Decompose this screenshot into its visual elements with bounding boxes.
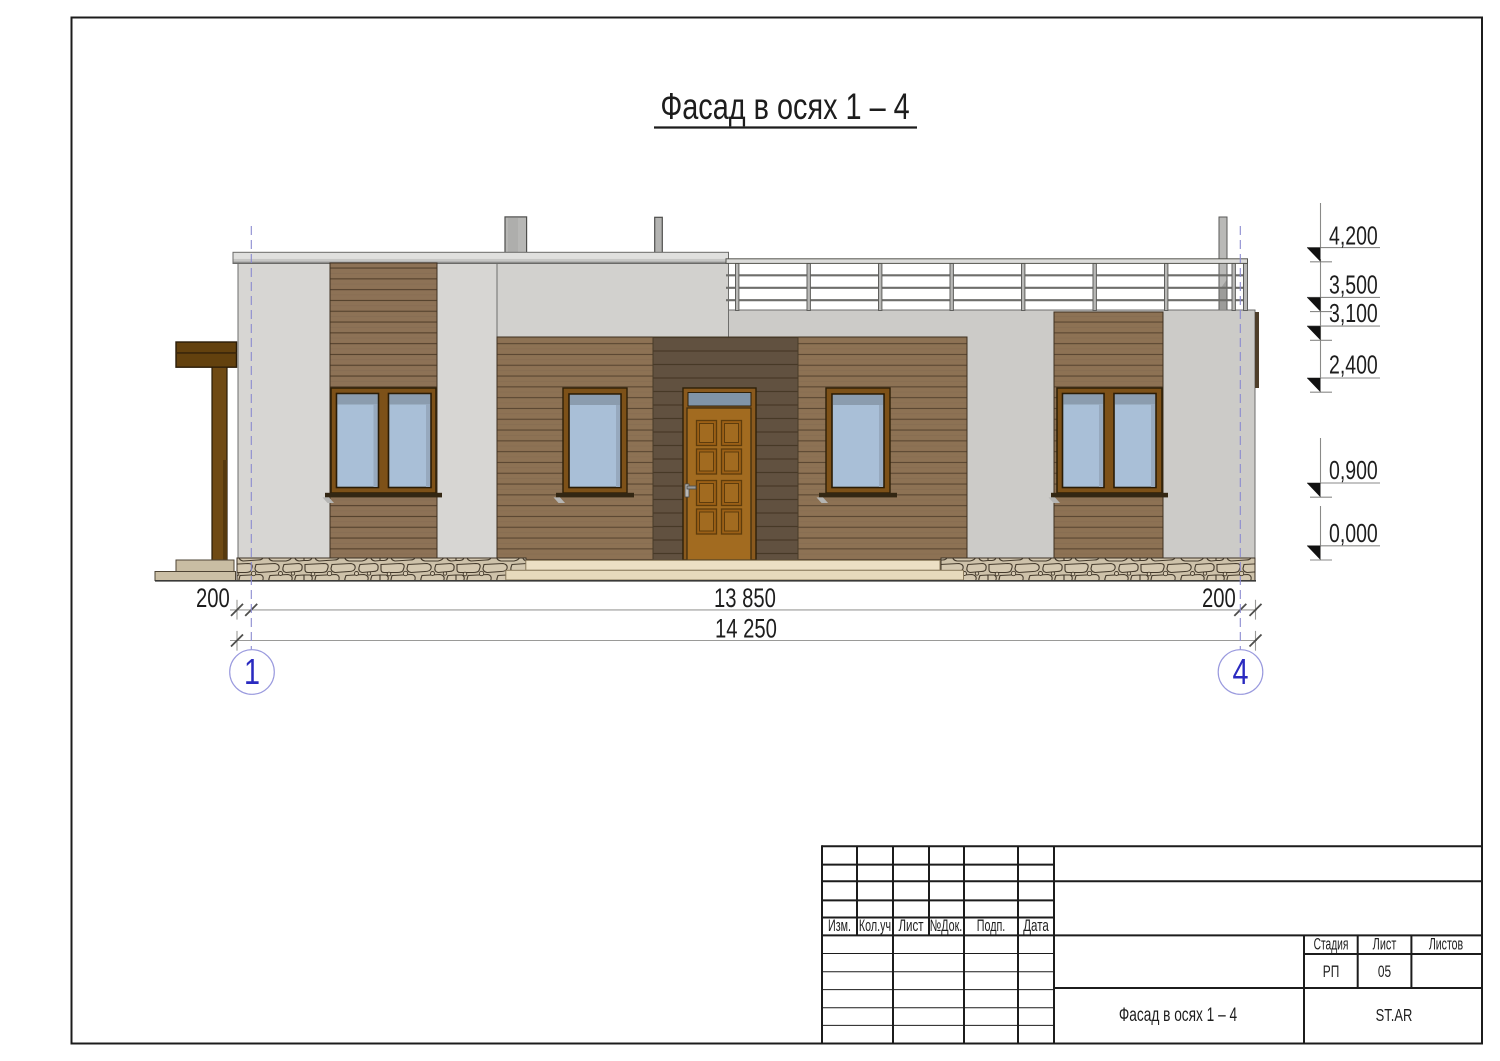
svg-text:Фасад в осях 1 – 4: Фасад в осях 1 – 4 (1119, 1004, 1237, 1026)
svg-text:4: 4 (1232, 651, 1248, 692)
svg-text:14 250: 14 250 (715, 614, 777, 645)
svg-text:3,100: 3,100 (1329, 298, 1378, 327)
svg-text:05: 05 (1378, 963, 1391, 982)
svg-text:Подп.: Подп. (977, 916, 1005, 935)
svg-text:Кол.уч: Кол.уч (859, 916, 891, 935)
svg-text:200: 200 (196, 583, 230, 614)
svg-text:1: 1 (244, 651, 260, 692)
svg-text:0,900: 0,900 (1329, 455, 1378, 484)
svg-text:Лист: Лист (1373, 934, 1397, 953)
svg-text:Фасад в осях 1 – 4: Фасад в осях 1 – 4 (660, 87, 909, 128)
svg-text:РП: РП (1323, 963, 1339, 982)
svg-text:200: 200 (1202, 583, 1236, 614)
svg-text:Стадия: Стадия (1314, 935, 1349, 953)
svg-text:2,400: 2,400 (1329, 350, 1378, 379)
svg-text:4,200: 4,200 (1329, 221, 1378, 250)
svg-text:Листов: Листов (1429, 934, 1463, 953)
svg-text:Лист: Лист (898, 917, 923, 936)
svg-text:ST.AR: ST.AR (1376, 1006, 1413, 1026)
svg-text:3,500: 3,500 (1329, 270, 1378, 299)
svg-text:0,000: 0,000 (1329, 518, 1378, 547)
svg-text:Изм.: Изм. (828, 916, 851, 935)
svg-text:№Док.: №Док. (930, 916, 963, 935)
svg-text:Дата: Дата (1023, 917, 1049, 936)
svg-text:13 850: 13 850 (714, 583, 776, 614)
